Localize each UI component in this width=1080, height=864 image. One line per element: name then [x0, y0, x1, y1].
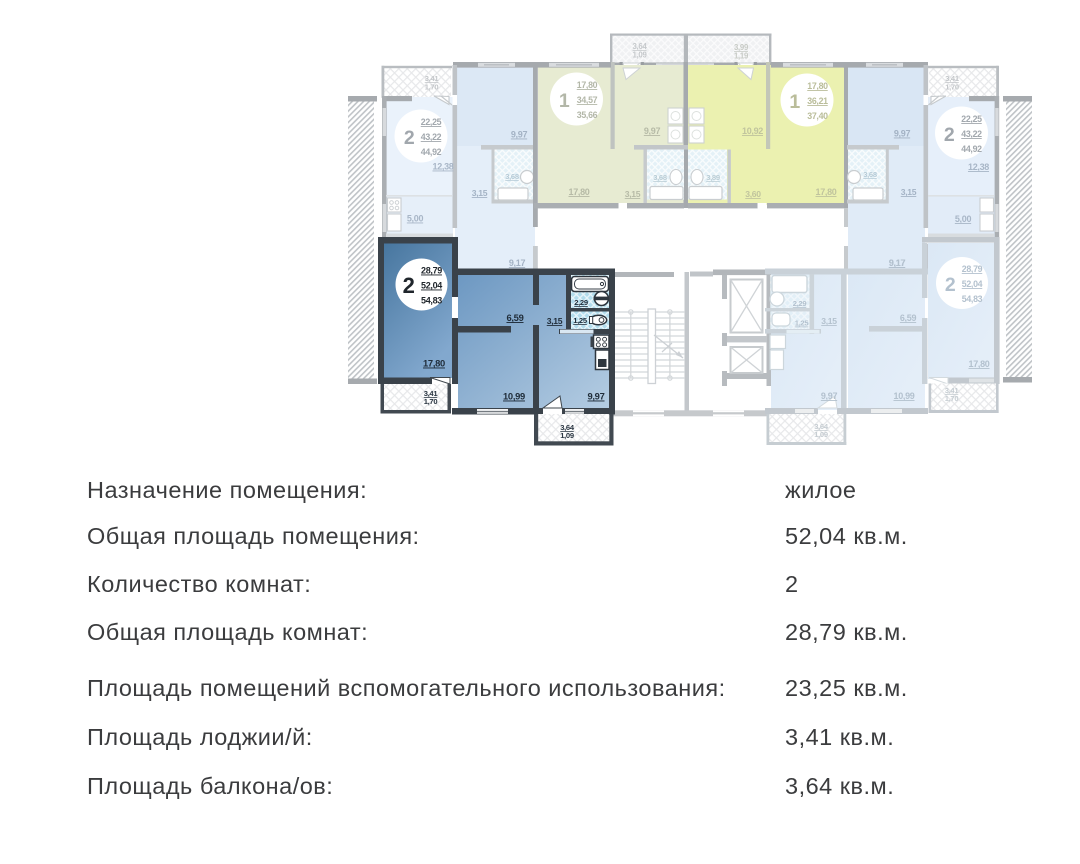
svg-text:36,21: 36,21: [807, 96, 828, 106]
svg-text:37,40: 37,40: [807, 111, 828, 121]
svg-text:54,83: 54,83: [421, 296, 442, 306]
svg-text:9,97: 9,97: [821, 391, 838, 401]
svg-text:3,15: 3,15: [625, 189, 641, 199]
svg-text:1: 1: [559, 90, 570, 112]
svg-text:2: 2: [403, 273, 415, 298]
svg-text:3,89: 3,89: [706, 173, 720, 182]
svg-text:1: 1: [789, 91, 800, 113]
svg-text:9,17: 9,17: [889, 258, 906, 268]
svg-text:43,22: 43,22: [961, 129, 982, 139]
svg-text:22,25: 22,25: [421, 117, 442, 127]
svg-text:1,70: 1,70: [945, 83, 959, 92]
svg-text:1,09: 1,09: [814, 430, 828, 439]
svg-text:17,80: 17,80: [423, 358, 445, 369]
svg-text:9,97: 9,97: [587, 391, 604, 402]
svg-text:1,70: 1,70: [945, 394, 959, 403]
svg-text:10,92: 10,92: [742, 126, 763, 136]
svg-text:17,80: 17,80: [968, 359, 989, 369]
svg-text:54,83: 54,83: [962, 294, 983, 304]
svg-text:6,59: 6,59: [900, 313, 917, 323]
svg-text:52,04: 52,04: [421, 281, 442, 291]
svg-text:28,79: 28,79: [962, 264, 983, 274]
svg-text:22,25: 22,25: [961, 114, 982, 124]
svg-text:5,00: 5,00: [955, 214, 972, 224]
svg-text:2: 2: [404, 127, 415, 149]
svg-text:3,15: 3,15: [821, 316, 837, 326]
svg-text:1,19: 1,19: [734, 52, 749, 61]
svg-text:3,60: 3,60: [745, 189, 761, 199]
svg-text:9,97: 9,97: [511, 130, 528, 140]
svg-text:3,68: 3,68: [653, 173, 667, 182]
svg-text:2: 2: [945, 274, 956, 296]
svg-text:12,38: 12,38: [432, 162, 453, 172]
svg-text:6,59: 6,59: [506, 312, 523, 323]
svg-text:1,25: 1,25: [573, 316, 588, 325]
svg-text:10,99: 10,99: [893, 391, 914, 401]
svg-text:2,29: 2,29: [574, 298, 588, 307]
svg-text:17,80: 17,80: [568, 187, 589, 197]
svg-text:1,09: 1,09: [560, 431, 574, 440]
svg-text:3,15: 3,15: [547, 316, 563, 326]
svg-text:44,92: 44,92: [421, 147, 442, 157]
svg-text:3,68: 3,68: [863, 170, 877, 179]
svg-text:3,15: 3,15: [472, 188, 488, 198]
svg-text:2,29: 2,29: [793, 299, 807, 308]
svg-text:9,17: 9,17: [509, 258, 526, 268]
svg-text:5,00: 5,00: [407, 214, 424, 224]
svg-text:1,70: 1,70: [424, 397, 438, 406]
svg-text:1,25: 1,25: [795, 319, 810, 328]
svg-text:28,79: 28,79: [421, 266, 442, 276]
svg-text:2: 2: [944, 124, 955, 146]
svg-text:12,38: 12,38: [968, 162, 989, 172]
svg-text:44,92: 44,92: [961, 144, 982, 154]
svg-text:43,22: 43,22: [421, 132, 442, 142]
svg-text:9,97: 9,97: [644, 126, 661, 136]
svg-text:3,68: 3,68: [505, 172, 519, 181]
svg-text:17,80: 17,80: [815, 187, 836, 197]
svg-text:10,99: 10,99: [503, 391, 525, 402]
svg-text:52,04: 52,04: [962, 279, 983, 289]
svg-text:35,66: 35,66: [577, 110, 598, 120]
svg-text:9,97: 9,97: [894, 129, 911, 139]
svg-text:34,57: 34,57: [577, 95, 598, 105]
svg-text:1,09: 1,09: [633, 51, 648, 60]
svg-text:3,15: 3,15: [901, 187, 917, 197]
svg-text:17,80: 17,80: [577, 80, 598, 90]
svg-text:17,80: 17,80: [807, 81, 828, 91]
svg-text:1,70: 1,70: [425, 83, 439, 92]
